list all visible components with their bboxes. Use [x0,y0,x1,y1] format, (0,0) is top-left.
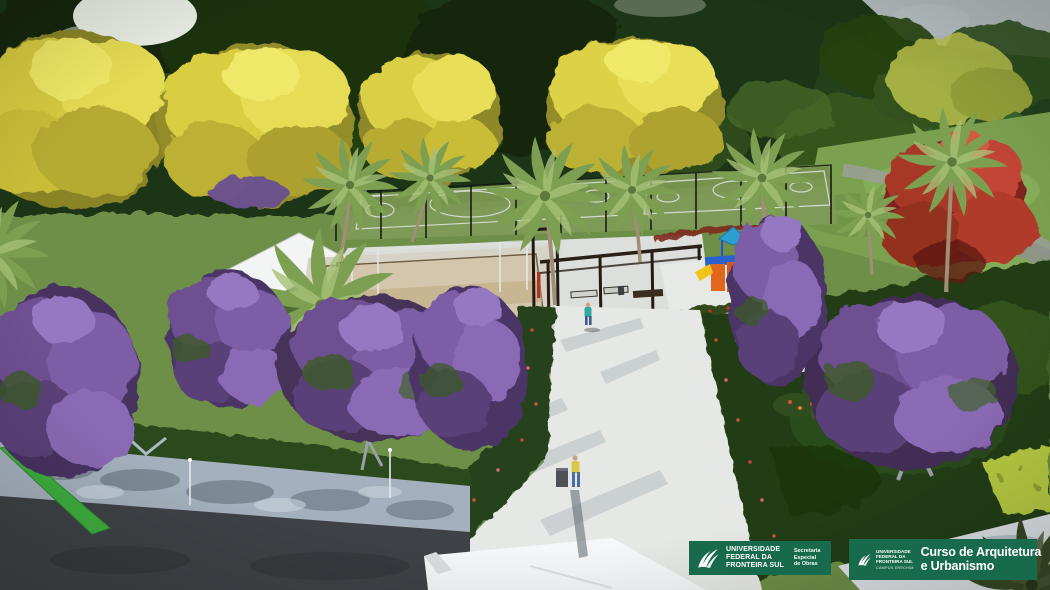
dept-line: Secretaria [794,548,821,555]
uffs-university-name: UNIVERSIDADE FEDERAL DA FRONTEIRA SUL [726,546,784,570]
uffs-name-line: UNIVERSIDADE [726,546,784,554]
uffs-obras-banner: UNIVERSIDADE FEDERAL DA FRONTEIRA SUL Se… [689,541,831,575]
dept-line: de Obras [794,561,821,568]
uffs-name-line: FRONTEIRA SUL [726,562,784,570]
course-title: Curso de Arquitetura e Urbanismo [921,546,1042,574]
secretaria-obras-label: Secretaria Especial de Obras [794,548,821,568]
course-line: Curso de Arquitetura [921,546,1042,560]
uffs-name-line: FEDERAL DA [726,554,784,562]
render-viewport: UNIVERSIDADE FEDERAL DA FRONTEIRA SUL Se… [0,0,1050,590]
vignette-overlay [0,0,1050,590]
park-render-scene [0,0,1050,590]
campus-label: CAMPUS ERECHIM [876,566,914,570]
dept-line: Especial [794,555,821,562]
course-line: e Urbanismo [921,560,1042,574]
uffs-name-line: FRONTEIRA SUL [876,559,914,564]
uffs-logo-icon [857,552,872,567]
uffs-campus-block: UNIVERSIDADE FEDERAL DA FRONTEIRA SUL CA… [857,549,914,571]
uffs-curso-banner: UNIVERSIDADE FEDERAL DA FRONTEIRA SUL CA… [849,539,1037,580]
uffs-logo-icon [696,546,720,570]
uffs-university-name-small: UNIVERSIDADE FEDERAL DA FRONTEIRA SUL CA… [876,549,914,571]
